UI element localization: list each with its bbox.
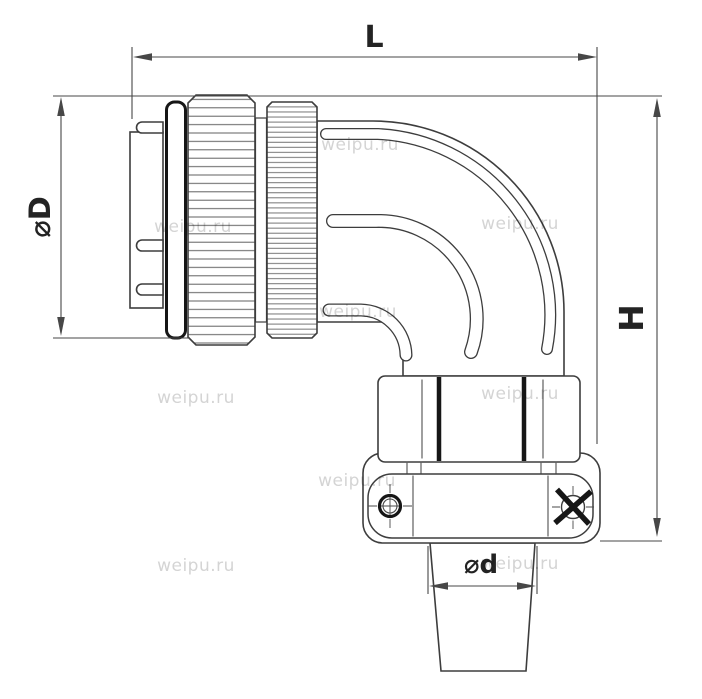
watermark: weipu.ru	[319, 302, 397, 322]
bayonet-key-middle	[137, 240, 164, 251]
watermark: weipu.ru	[154, 217, 232, 237]
watermark: weipu.ru	[481, 554, 559, 574]
technical-drawing-page: L ⌀D H ⌀d weipu.ru w	[0, 0, 702, 699]
cable-clamp	[368, 462, 594, 538]
arrowhead-bottom	[653, 518, 661, 537]
front-shell	[130, 122, 163, 308]
arrowhead-top	[57, 97, 65, 116]
arrowhead-top	[653, 98, 661, 117]
watermark: weipu.ru	[157, 388, 235, 408]
dimension-label-L: L	[364, 20, 383, 55]
watermark: weipu.ru	[321, 135, 399, 155]
arrowhead-right	[578, 53, 597, 61]
watermark: weipu.ru	[157, 556, 235, 576]
connector-body	[130, 95, 600, 671]
dimension-H: H	[600, 98, 662, 541]
bayonet-key-top	[137, 122, 164, 133]
arrowhead-bottom	[57, 317, 65, 336]
connector-dimension-drawing: L ⌀D H ⌀d weipu.ru w	[0, 0, 702, 699]
groove-ring	[256, 118, 267, 322]
dimension-label-D: ⌀D	[23, 196, 57, 238]
backshell-knurl	[267, 102, 317, 338]
watermark: weipu.ru	[318, 471, 396, 491]
arrowhead-left	[133, 53, 152, 61]
watermark: weipu.ru	[481, 384, 559, 404]
watermark: weipu.ru	[481, 214, 559, 234]
dimension-label-H: H	[612, 304, 651, 332]
bayonet-key-bottom	[137, 284, 164, 295]
